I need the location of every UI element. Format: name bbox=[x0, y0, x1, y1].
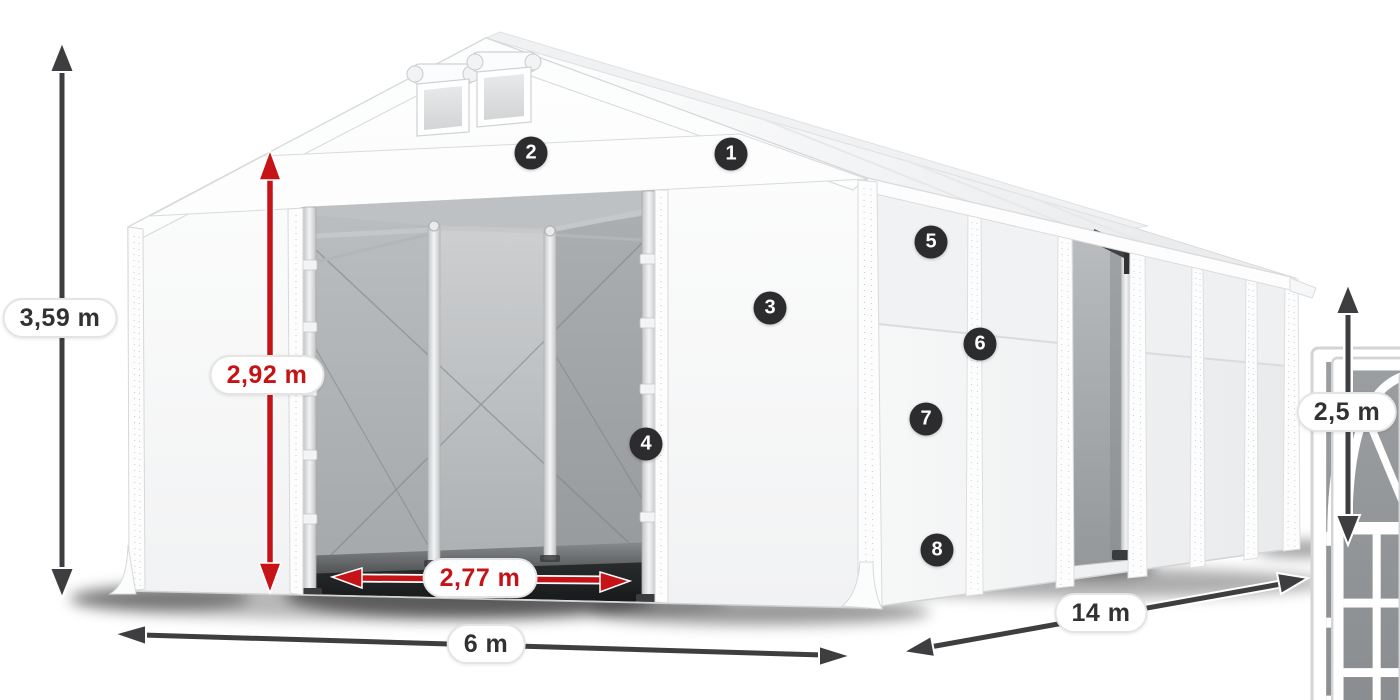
tent-dimension-diagram: 3,59 m 2,92 m 2,77 m 6 m 14 m 2,5 m 1 2 … bbox=[0, 0, 1400, 700]
side-height-label: 2,5 m bbox=[1297, 392, 1397, 432]
total-height-label: 3,59 m bbox=[3, 298, 118, 338]
marker-7: 7 bbox=[910, 403, 943, 436]
marker-5: 5 bbox=[915, 226, 948, 259]
door-width-label: 2,77 m bbox=[423, 558, 538, 598]
marker-4: 4 bbox=[630, 428, 663, 461]
marker-3: 3 bbox=[754, 292, 787, 325]
marker-2: 2 bbox=[515, 137, 548, 170]
marker-6: 6 bbox=[964, 328, 997, 361]
marker-1: 1 bbox=[715, 138, 748, 171]
tent-illustration bbox=[0, 0, 1400, 700]
gable-width-label: 6 m bbox=[447, 624, 526, 664]
length-label: 14 m bbox=[1055, 593, 1148, 633]
marker-8: 8 bbox=[921, 534, 954, 567]
door-height-label: 2,92 m bbox=[210, 355, 325, 395]
front-left-corner-seam bbox=[128, 227, 145, 591]
